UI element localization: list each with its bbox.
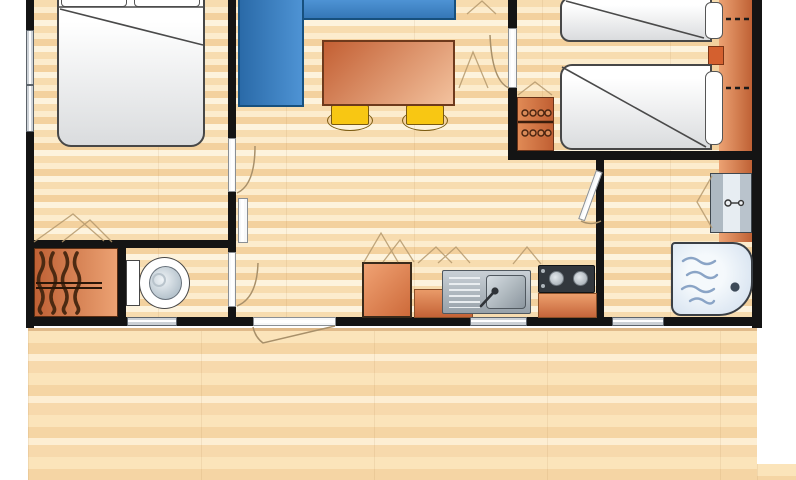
sketch-overlay	[0, 0, 796, 480]
floorplan-canvas	[0, 0, 796, 480]
